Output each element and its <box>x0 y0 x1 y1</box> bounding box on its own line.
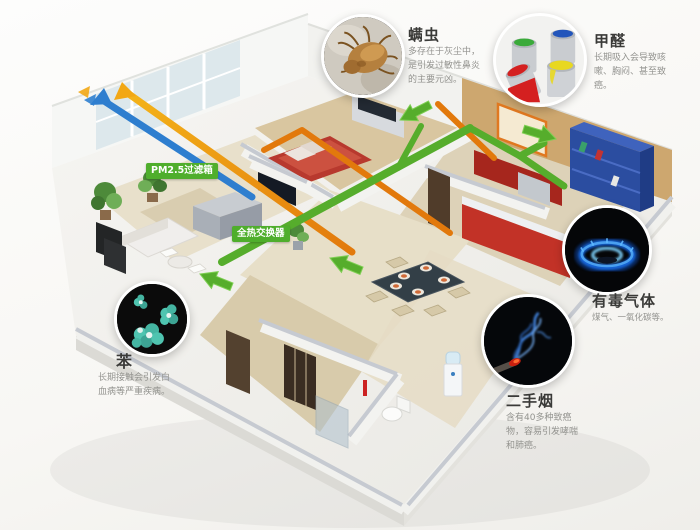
toxic-gas-title: 有毒气体 <box>592 290 656 311</box>
secondhand-smoke-desc: 含有40多种致癌物，容易引发哮喘和肺癌。 <box>506 412 584 454</box>
mite-title: 螨虫 <box>408 24 440 45</box>
yellow-can <box>547 60 575 97</box>
paint-cans-photo-icon <box>493 13 587 107</box>
pm25-filter-label: PM2.5过滤箱 <box>146 163 218 179</box>
towel-bar <box>363 380 367 396</box>
formaldehyde-desc: 长期吸入会导致咳嗽、胸闷、甚至致癌。 <box>594 52 676 94</box>
gas-flame-photo-icon <box>562 205 652 295</box>
secondhand-smoke-title: 二手烟 <box>506 390 554 411</box>
mite-desc: 多存在于灰尘中，是引发过敏性鼻炎的主要元凶。 <box>408 46 488 88</box>
toilet-bowl <box>382 407 402 421</box>
benzene-molecule-photo-icon <box>114 281 190 357</box>
benzene-title: 苯 <box>116 348 133 372</box>
dust-mite-photo-icon <box>321 14 405 98</box>
formaldehyde-title: 甲醛 <box>594 30 626 51</box>
toxic-gas-desc: 煤气、一氧化碳等。 <box>592 312 692 325</box>
air-pollution-infographic: PM2.5过滤箱 全热交换器 螨虫 多存在于灰尘中，是引发过敏性鼻炎 <box>0 0 700 530</box>
benzene-desc: 长期接触会引发白血病等严重疾病。 <box>98 372 178 400</box>
water-dispenser <box>444 352 462 396</box>
blue-can <box>551 30 576 64</box>
heat-exchanger-label: 全热交换器 <box>232 226 290 242</box>
cigarette-smoke-photo-icon <box>481 294 575 388</box>
